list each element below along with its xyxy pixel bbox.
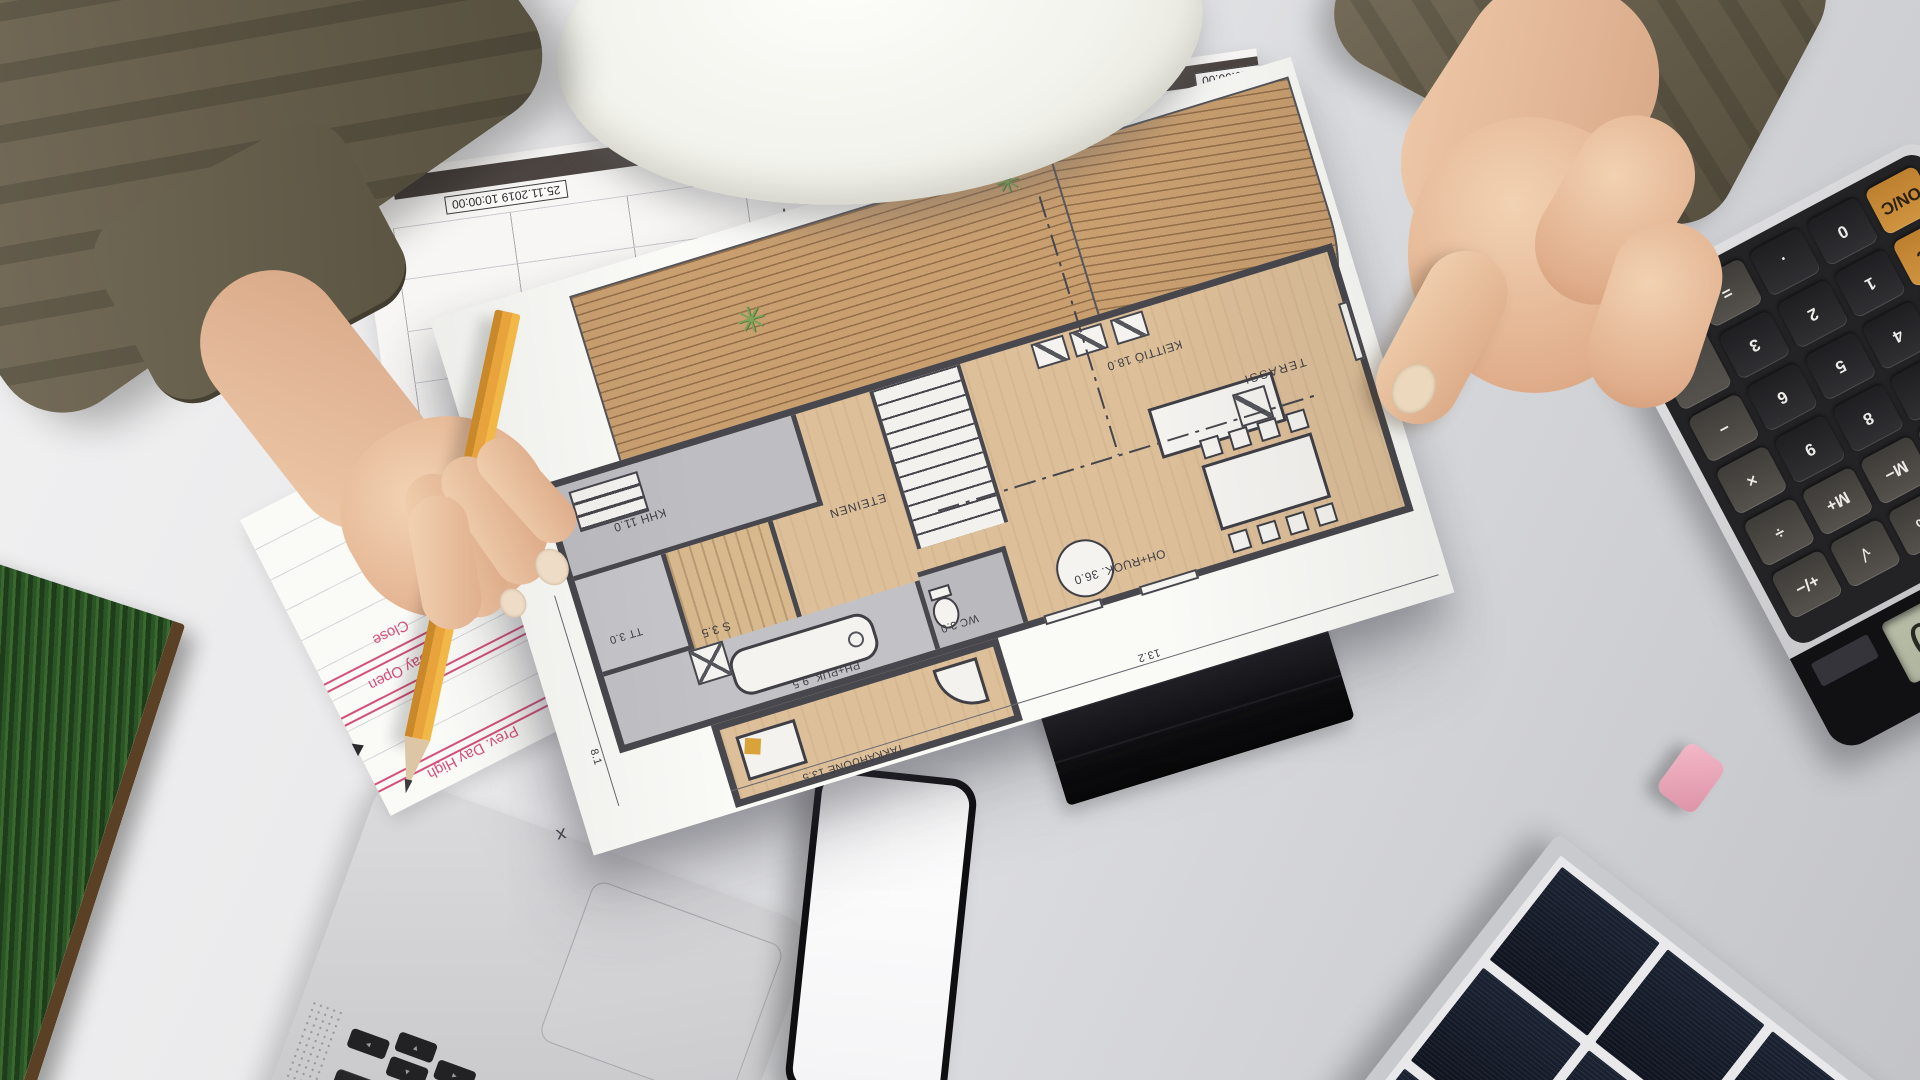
arrow-left-key: ◂ <box>346 1028 390 1060</box>
solar-cell-grid <box>1227 867 1920 1080</box>
laptop: ◂ ▴ ▾ ▸ <box>235 770 818 1080</box>
smartphone <box>783 764 979 1080</box>
solar-panel <box>1194 833 1920 1080</box>
calculator-solar-cell <box>1810 634 1879 687</box>
laptop-trackpad <box>537 879 785 1080</box>
kitchen-appliance <box>1069 323 1109 358</box>
calc-key-plusminus: +/− <box>1770 549 1844 620</box>
notebook-arrow-marker <box>352 739 367 756</box>
desk-photo-scene: ◂ ▴ ▾ ▸ x + = . 0 ON/C 3 2 1 AC − 6 5 4 … <box>0 0 1920 1080</box>
laptop-speaker-grille <box>247 999 344 1080</box>
laptop-arrow-keys: ◂ ▴ ▾ ▸ <box>342 1015 489 1080</box>
smartphone-screen <box>791 772 971 1080</box>
staircase <box>869 364 1008 550</box>
arrow-right-key: ▸ <box>433 1059 477 1080</box>
dimension-bottom: 13.2 <box>1136 645 1162 664</box>
calc-key-onc: ON/C <box>1864 165 1920 236</box>
right-thumbnail <box>1383 356 1444 422</box>
eraser <box>1655 740 1727 816</box>
kitchen-appliance <box>1110 310 1150 345</box>
sofa-pillow <box>744 738 761 755</box>
calc-key-sqrt: √ <box>1828 518 1902 589</box>
kitchen-appliance <box>1030 335 1070 370</box>
grass-swatch <box>0 545 185 1080</box>
